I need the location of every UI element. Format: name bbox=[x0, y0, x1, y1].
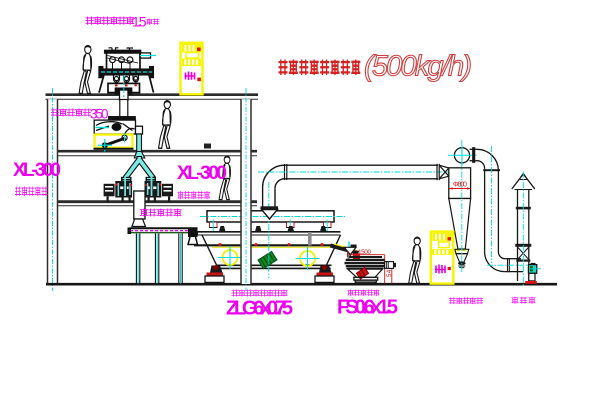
svg-text:XL-300: XL-300 bbox=[13, 160, 61, 181]
svg-text:FS0.6x1.5: FS0.6x1.5 bbox=[337, 297, 398, 319]
svg-text:XL-300: XL-300 bbox=[177, 163, 227, 184]
svg-text:1500: 1500 bbox=[358, 249, 371, 256]
svg-text:(500kg/h): (500kg/h) bbox=[364, 51, 472, 83]
svg-text:Φ800: Φ800 bbox=[453, 182, 467, 189]
svg-text:ZLG6x0.75: ZLG6x0.75 bbox=[226, 298, 293, 320]
svg-text:1.5: 1.5 bbox=[132, 14, 147, 30]
svg-text:350: 350 bbox=[90, 107, 109, 122]
